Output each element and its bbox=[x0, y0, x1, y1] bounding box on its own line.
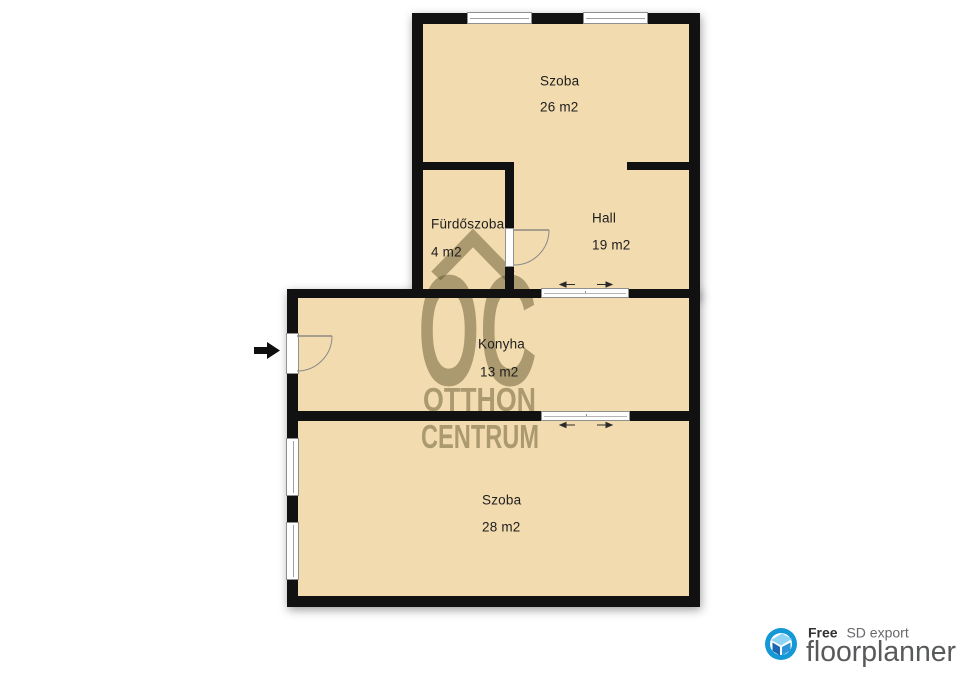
wall-segment-11 bbox=[287, 496, 298, 522]
room-area-szoba-top: 26 m2 bbox=[540, 100, 579, 115]
window-1 bbox=[583, 12, 648, 24]
wall-segment-8 bbox=[629, 289, 700, 298]
room-area-szoba-bottom: 28 m2 bbox=[482, 520, 521, 535]
wall-segment-9 bbox=[287, 289, 298, 333]
floorplan-canvas: OC OTTHON CENTRUM S bbox=[0, 0, 960, 679]
room-label-furdoszoba: Fürdőszoba bbox=[431, 217, 504, 232]
wall-segment-13 bbox=[287, 411, 541, 421]
entrance-arrow-icon bbox=[254, 342, 280, 359]
window-0 bbox=[467, 12, 532, 24]
room-label-hall: Hall bbox=[592, 211, 616, 226]
room-fill-top-section bbox=[422, 24, 690, 289]
room-area-konyha: 13 m2 bbox=[480, 365, 519, 380]
window-3 bbox=[286, 522, 299, 580]
wall-segment-0 bbox=[412, 13, 700, 24]
wall-segment-3 bbox=[412, 162, 512, 170]
sliding-door-1 bbox=[541, 411, 630, 421]
room-label-konyha: Konyha bbox=[478, 337, 525, 352]
wall-segment-4 bbox=[627, 162, 700, 170]
room-label-szoba-top: Szoba bbox=[540, 74, 579, 89]
floorplanner-logo: Free SD export floorplanner bbox=[760, 618, 960, 670]
wall-segment-1 bbox=[412, 13, 423, 298]
window-2 bbox=[286, 438, 299, 496]
door-frame-1 bbox=[286, 333, 299, 374]
room-label-szoba-bottom: Szoba bbox=[482, 493, 521, 508]
room-area-furdoszoba: 4 m2 bbox=[431, 245, 462, 260]
wall-segment-10 bbox=[287, 374, 298, 438]
door-frame-0 bbox=[505, 228, 514, 267]
sliding-door-0 bbox=[541, 288, 629, 298]
wall-segment-7 bbox=[287, 289, 541, 298]
wall-segment-14 bbox=[630, 411, 700, 421]
brand-label: floorplanner bbox=[806, 636, 956, 668]
wall-segment-2 bbox=[689, 13, 700, 607]
wall-segment-15 bbox=[287, 596, 700, 607]
room-area-hall: 19 m2 bbox=[592, 238, 631, 253]
wall-segment-5 bbox=[505, 162, 514, 228]
